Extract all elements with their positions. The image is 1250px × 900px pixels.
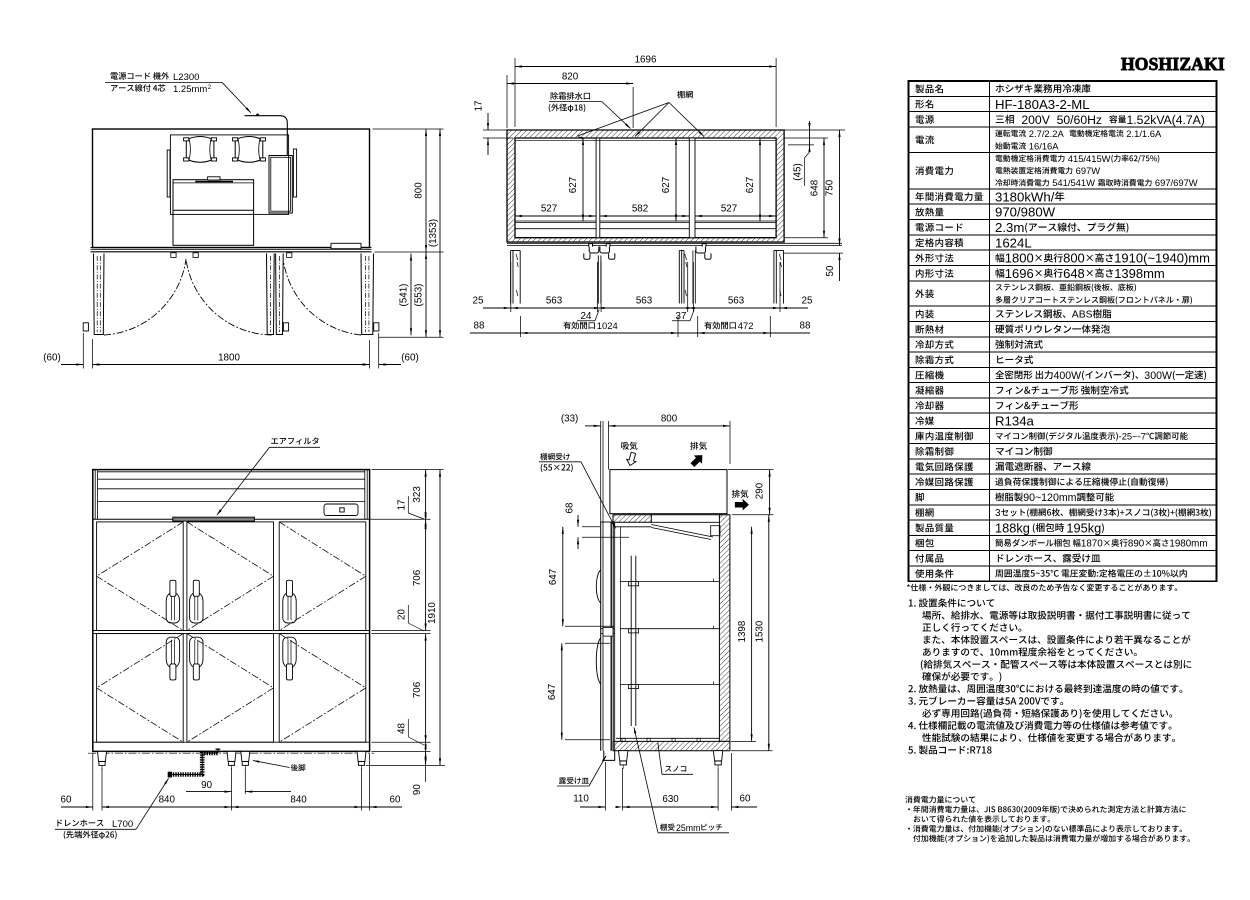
svg-text:90: 90 bbox=[201, 780, 212, 791]
svg-text:1024: 1024 bbox=[597, 320, 618, 331]
svg-text:2.3m: 2.3m bbox=[995, 220, 1024, 235]
svg-text:110: 110 bbox=[573, 794, 589, 805]
svg-text:(541): (541) bbox=[398, 284, 409, 307]
svg-text:60: 60 bbox=[61, 795, 72, 806]
svg-text:1.25mm: 1.25mm bbox=[173, 84, 207, 95]
svg-text:88: 88 bbox=[800, 321, 811, 332]
svg-text:L2300: L2300 bbox=[173, 72, 199, 83]
svg-text:68: 68 bbox=[565, 502, 576, 513]
svg-text:800: 800 bbox=[661, 414, 678, 425]
svg-text:630: 630 bbox=[662, 794, 679, 805]
svg-text:60: 60 bbox=[740, 794, 751, 805]
svg-text:648: 648 bbox=[810, 179, 821, 196]
svg-text:472: 472 bbox=[738, 320, 754, 331]
svg-text:563: 563 bbox=[728, 296, 745, 307]
svg-text:706: 706 bbox=[412, 569, 423, 586]
svg-text:200V 50/60Hz: 200V 50/60Hz bbox=[1015, 113, 1109, 127]
svg-text:1624L: 1624L bbox=[995, 235, 1032, 250]
svg-text:(45): (45) bbox=[793, 163, 804, 180]
svg-text:(60): (60) bbox=[43, 353, 60, 364]
svg-text:800: 800 bbox=[414, 182, 425, 199]
svg-text:323: 323 bbox=[412, 486, 423, 503]
svg-text:60: 60 bbox=[390, 795, 401, 806]
svg-text:840: 840 bbox=[159, 795, 176, 806]
svg-text:647: 647 bbox=[547, 684, 558, 700]
svg-text:1910(~1940)mm: 1910(~1940)mm bbox=[1114, 251, 1210, 266]
svg-text:800: 800 bbox=[1063, 251, 1085, 266]
svg-text:24: 24 bbox=[581, 311, 592, 322]
svg-text:1530: 1530 bbox=[754, 620, 765, 642]
svg-text:627: 627 bbox=[661, 177, 672, 193]
svg-text:3: 3 bbox=[995, 508, 1001, 519]
svg-text:541/541W: 541/541W bbox=[1050, 177, 1098, 188]
svg-text:1696: 1696 bbox=[1005, 266, 1034, 281]
svg-text:563: 563 bbox=[546, 296, 563, 307]
svg-text:25: 25 bbox=[473, 296, 484, 307]
svg-text:88: 88 bbox=[474, 321, 485, 332]
svg-text:90: 90 bbox=[412, 784, 423, 795]
svg-text:48: 48 bbox=[397, 723, 408, 734]
svg-text:37: 37 bbox=[676, 311, 687, 322]
svg-text:527: 527 bbox=[541, 204, 557, 215]
svg-text:L700: L700 bbox=[112, 819, 133, 830]
svg-text:1398: 1398 bbox=[737, 620, 748, 642]
svg-text:16/16A: 16/16A bbox=[1026, 140, 1059, 151]
svg-text:HOSHIZAKI: HOSHIZAKI bbox=[1121, 54, 1225, 74]
svg-text:627: 627 bbox=[568, 177, 579, 193]
svg-text:HF-180A3-2-ML: HF-180A3-2-ML bbox=[995, 97, 1090, 112]
svg-text:563: 563 bbox=[636, 296, 653, 307]
svg-text:648: 648 bbox=[1063, 266, 1085, 281]
svg-text:(33): (33) bbox=[561, 414, 578, 425]
svg-text:3180kWh/: 3180kWh/ bbox=[995, 189, 1055, 204]
svg-text:300W: 300W bbox=[1144, 370, 1172, 382]
svg-text:195kg: 195kg bbox=[1066, 520, 1101, 535]
svg-text:1.52kVA(4.7A): 1.52kVA(4.7A) bbox=[1127, 113, 1205, 127]
svg-text:582: 582 bbox=[632, 204, 648, 215]
svg-text:970/980W: 970/980W bbox=[995, 205, 1056, 220]
svg-text:697/697W: 697/697W bbox=[1152, 177, 1197, 188]
svg-text:1870: 1870 bbox=[1081, 539, 1103, 550]
svg-text:1696: 1696 bbox=[635, 55, 657, 66]
svg-text:50: 50 bbox=[825, 265, 836, 276]
svg-text:20: 20 bbox=[397, 609, 408, 620]
svg-text:17: 17 bbox=[474, 101, 485, 112]
svg-text:400W: 400W bbox=[1054, 370, 1082, 382]
svg-text:1800: 1800 bbox=[218, 353, 240, 364]
svg-text:820: 820 bbox=[562, 72, 579, 83]
svg-text:1910: 1910 bbox=[427, 602, 438, 624]
svg-text:ABS: ABS bbox=[1072, 310, 1093, 321]
svg-text:706: 706 bbox=[412, 681, 423, 698]
svg-text:-25~-7: -25~-7 bbox=[1119, 430, 1146, 441]
svg-text:527: 527 bbox=[721, 204, 737, 215]
svg-text:90~120mm: 90~120mm bbox=[1023, 492, 1076, 504]
svg-text:25mm: 25mm bbox=[676, 823, 700, 833]
svg-text:(60): (60) bbox=[401, 353, 418, 364]
svg-text:(1353): (1353) bbox=[428, 219, 439, 247]
svg-text:750: 750 bbox=[825, 179, 836, 196]
svg-text:1980mm: 1980mm bbox=[1169, 539, 1207, 550]
svg-text:R134a: R134a bbox=[995, 414, 1035, 429]
svg-text:17: 17 bbox=[397, 500, 408, 511]
svg-text:(553): (553) bbox=[413, 284, 424, 307]
svg-text:840: 840 bbox=[290, 795, 307, 806]
svg-text:415/415W: 415/415W bbox=[1065, 153, 1110, 164]
svg-text:1800: 1800 bbox=[1005, 251, 1034, 266]
svg-text:890: 890 bbox=[1128, 539, 1145, 550]
svg-text:2.7/2.2A: 2.7/2.2A bbox=[1026, 128, 1069, 139]
svg-text:1398mm: 1398mm bbox=[1114, 266, 1165, 281]
svg-text:2.1/1.6A: 2.1/1.6A bbox=[1124, 128, 1162, 139]
svg-text:290: 290 bbox=[754, 482, 765, 499]
svg-text:647: 647 bbox=[548, 569, 559, 585]
svg-text:188kg: 188kg bbox=[995, 520, 1030, 535]
svg-text:697W: 697W bbox=[1073, 165, 1100, 176]
svg-text:627: 627 bbox=[745, 177, 756, 193]
svg-text:25: 25 bbox=[802, 296, 813, 307]
